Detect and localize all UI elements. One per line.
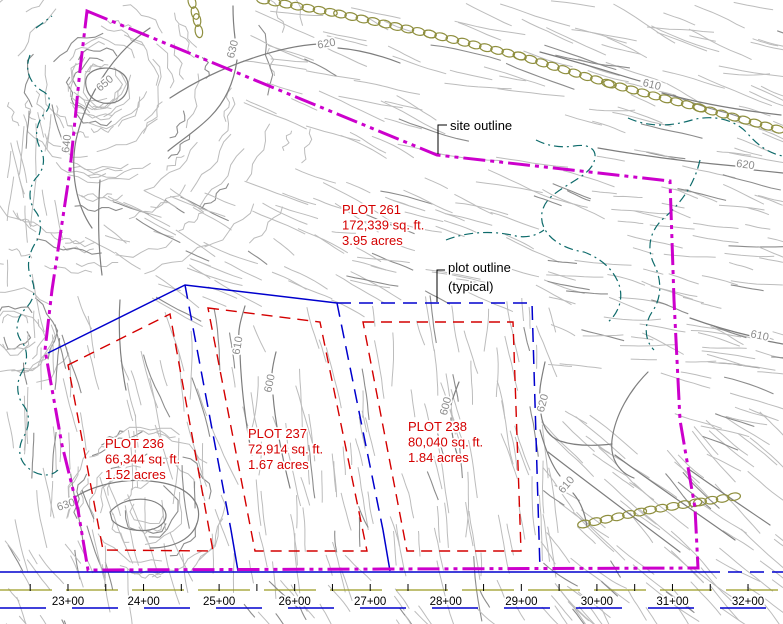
station-label-24-00: 24+00: [127, 596, 159, 608]
plot-236-name: PLOT 236: [105, 436, 164, 451]
station-label-31-00: 31+00: [656, 596, 688, 608]
plot-237-name: PLOT 237: [248, 426, 307, 441]
plot-238-area-acres: 1.84 acres: [408, 450, 469, 465]
plot-237-area-acres: 1.67 acres: [248, 457, 309, 472]
plot-outline-label-line1: plot outline: [448, 260, 511, 275]
minor-contour-stroke: [359, 517, 360, 547]
station-label-29-00: 29+00: [505, 596, 537, 608]
plot-237-area-sqft: 72,914 sq. ft.: [248, 442, 323, 457]
minor-contour-stroke: [322, 471, 323, 503]
plot-238-name: PLOT 238: [408, 419, 467, 434]
station-label-30-00: 30+00: [581, 596, 613, 608]
plot-outline-label-line2: (typical): [448, 279, 494, 294]
plot-236-area-sqft: 66,344 sq. ft.: [105, 452, 180, 467]
minor-contour-stroke: [41, 348, 42, 390]
minor-contour-stroke: [195, 481, 196, 508]
plot-261-area-acres: 3.95 acres: [342, 233, 403, 248]
plot-238-area-sqft: 80,040 sq. ft.: [408, 435, 483, 450]
site-plan-canvas: 650640630620610620610610600600620610630 …: [0, 0, 783, 624]
plot-261-name: PLOT 261: [342, 202, 401, 217]
station-label-25-00: 25+00: [203, 596, 235, 608]
contour-elevation-label: 620: [735, 158, 755, 172]
station-label-28-00: 28+00: [430, 596, 462, 608]
station-label-26-00: 26+00: [279, 596, 311, 608]
plot-236-area-acres: 1.52 acres: [105, 467, 166, 482]
plot-261-area-sqft: 172,339 sq. ft.: [342, 218, 424, 233]
station-label-32-00: 32+00: [732, 596, 764, 608]
site-plan-drawing: 650640630620610620610610600600620610630 …: [0, 0, 783, 624]
station-label-27-00: 27+00: [354, 596, 386, 608]
station-label-23-00: 23+00: [52, 596, 84, 608]
site-outline-label: site outline: [450, 118, 512, 133]
